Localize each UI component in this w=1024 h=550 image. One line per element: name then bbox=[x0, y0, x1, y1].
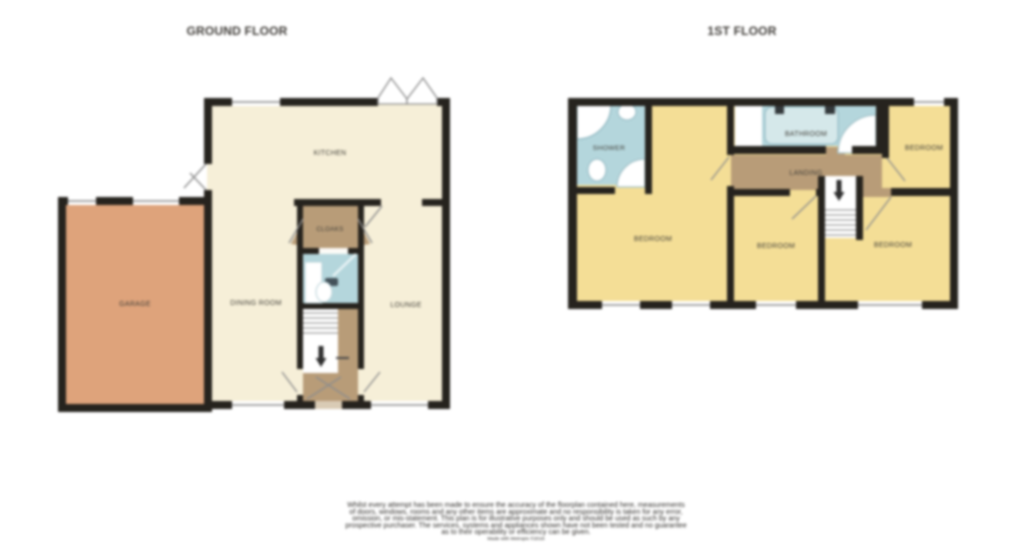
svg-text:BEDROOM: BEDROOM bbox=[757, 243, 795, 250]
svg-text:GARAGE: GARAGE bbox=[119, 301, 151, 308]
svg-text:BEDROOM: BEDROOM bbox=[905, 145, 943, 152]
svg-text:BEDROOM: BEDROOM bbox=[634, 236, 672, 243]
svg-text:LANDING: LANDING bbox=[789, 170, 822, 177]
svg-text:LOUNGE: LOUNGE bbox=[390, 302, 421, 309]
svg-text:GROUND FLOOR: GROUND FLOOR bbox=[186, 24, 287, 38]
svg-text:CLOAKS: CLOAKS bbox=[316, 226, 343, 233]
svg-text:BATHROOM: BATHROOM bbox=[785, 131, 827, 138]
svg-text:KITCHEN: KITCHEN bbox=[314, 150, 347, 157]
svg-text:DINING ROOM: DINING ROOM bbox=[230, 300, 282, 307]
svg-text:Made with Metropix ©2016: Made with Metropix ©2016 bbox=[487, 535, 544, 542]
svg-text:BEDROOM: BEDROOM bbox=[874, 242, 912, 249]
svg-text:as to their operability or eff: as to their operability or efficiency ca… bbox=[441, 528, 590, 536]
svg-text:SHOWER: SHOWER bbox=[593, 145, 625, 152]
svg-text:1ST FLOOR: 1ST FLOOR bbox=[707, 24, 776, 38]
